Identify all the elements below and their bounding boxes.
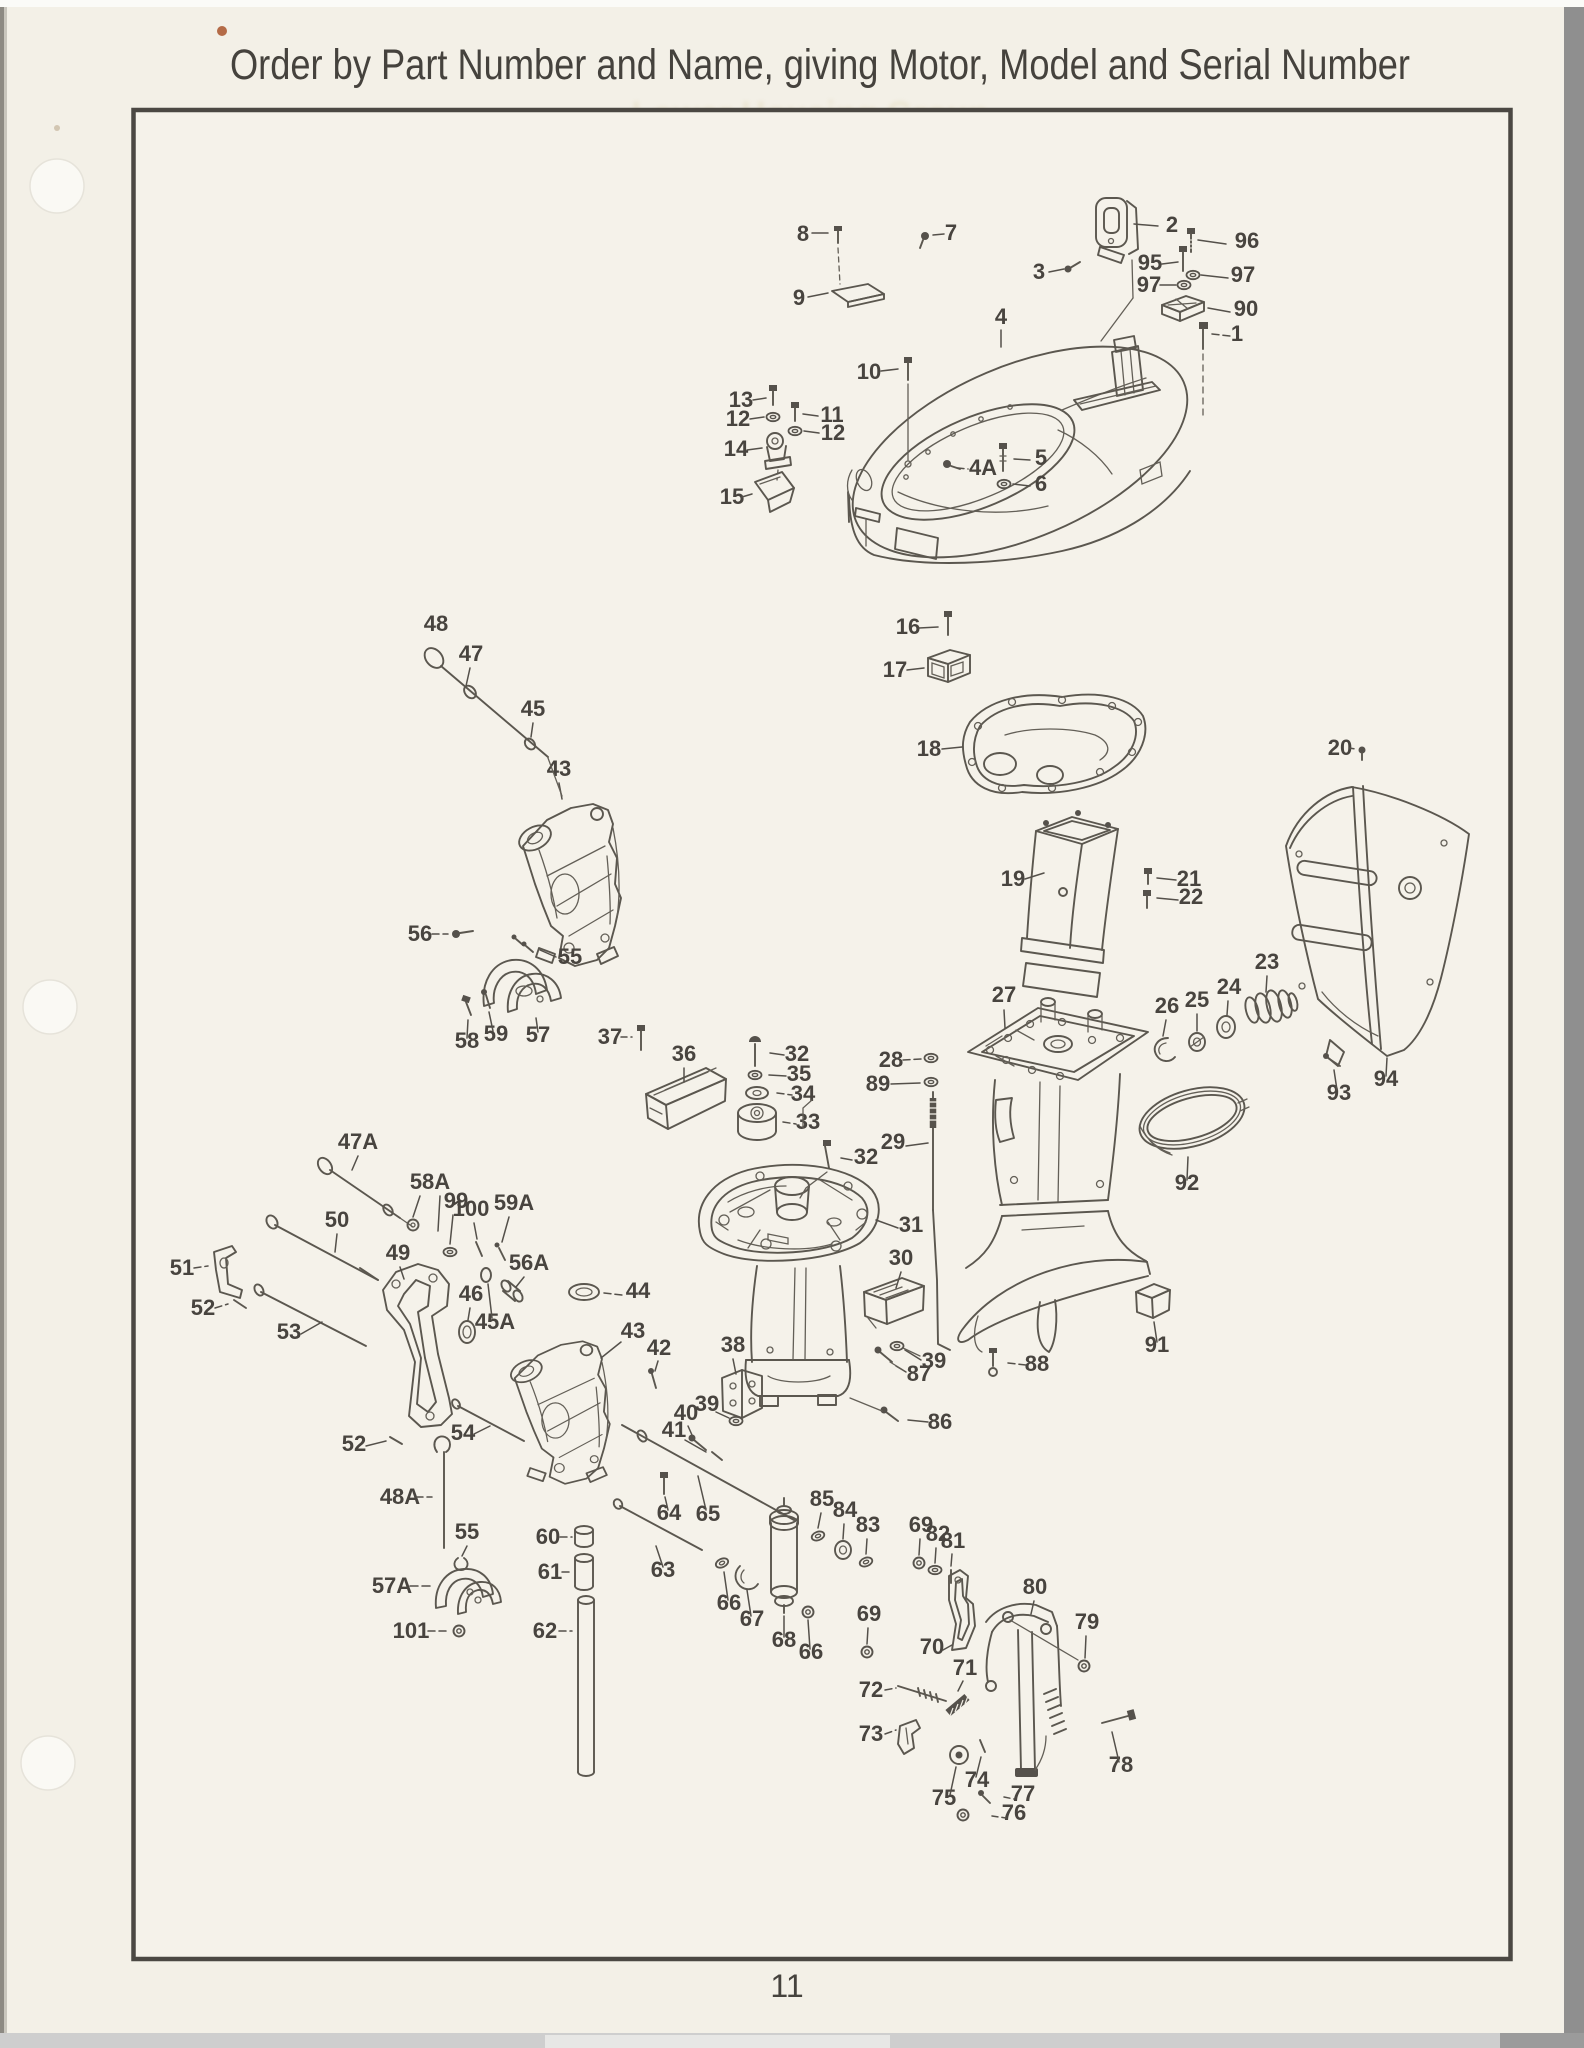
svg-text:96: 96 [1235,228,1259,253]
svg-text:45: 45 [521,696,545,721]
svg-text:6: 6 [1035,471,1047,496]
svg-text:101: 101 [393,1618,430,1643]
svg-text:38: 38 [721,1332,745,1357]
svg-text:83: 83 [856,1512,880,1537]
svg-text:43: 43 [547,756,571,781]
svg-text:67: 67 [740,1606,764,1631]
svg-text:31: 31 [899,1212,923,1237]
svg-text:11: 11 [770,1968,803,2004]
svg-text:81: 81 [941,1528,965,1553]
svg-text:17: 17 [883,657,907,682]
svg-text:89: 89 [866,1071,890,1096]
svg-text:30: 30 [889,1245,913,1270]
svg-text:4: 4 [995,304,1008,329]
svg-text:57: 57 [526,1022,550,1047]
svg-text:78: 78 [1109,1752,1133,1777]
svg-text:34: 34 [791,1081,816,1106]
svg-text:66: 66 [717,1590,741,1615]
svg-text:64: 64 [657,1500,682,1525]
svg-text:72: 72 [859,1677,883,1702]
svg-text:69: 69 [857,1601,881,1626]
svg-text:54: 54 [451,1420,476,1445]
svg-text:90: 90 [1234,296,1258,321]
svg-text:24: 24 [1217,974,1242,999]
svg-text:46: 46 [459,1281,483,1306]
svg-text:79: 79 [1075,1609,1099,1634]
svg-text:59: 59 [484,1021,508,1046]
svg-text:23: 23 [1255,949,1279,974]
svg-text:16: 16 [896,614,920,639]
svg-text:1: 1 [1231,321,1243,346]
svg-text:52: 52 [191,1295,215,1320]
svg-text:55: 55 [455,1519,479,1544]
svg-text:53: 53 [277,1319,301,1344]
svg-text:28: 28 [879,1047,903,1072]
svg-text:50: 50 [325,1207,349,1232]
svg-text:10: 10 [857,359,881,384]
svg-text:5: 5 [1035,445,1047,470]
svg-text:51: 51 [170,1255,194,1280]
svg-text:88: 88 [1025,1351,1049,1376]
svg-text:87: 87 [907,1361,931,1386]
svg-text:15: 15 [720,484,744,509]
svg-text:84: 84 [833,1497,858,1522]
svg-text:12: 12 [726,406,750,431]
svg-text:4A: 4A [969,455,997,480]
svg-text:42: 42 [647,1335,671,1360]
svg-text:100: 100 [453,1196,490,1221]
svg-text:32: 32 [854,1144,878,1169]
svg-text:65: 65 [696,1501,720,1526]
svg-text:61: 61 [538,1559,562,1584]
svg-text:43: 43 [621,1318,645,1343]
svg-text:75: 75 [932,1785,956,1810]
svg-text:12: 12 [821,420,845,445]
svg-text:47A: 47A [338,1129,378,1154]
svg-text:57A: 57A [372,1573,412,1598]
svg-text:73: 73 [859,1721,883,1746]
svg-text:93: 93 [1327,1080,1351,1105]
svg-text:44: 44 [626,1278,651,1303]
svg-text:9: 9 [793,285,805,310]
svg-text:97: 97 [1231,262,1255,287]
svg-text:49: 49 [386,1240,410,1265]
svg-text:19: 19 [1001,866,1025,891]
svg-text:52: 52 [342,1431,366,1456]
svg-text:3: 3 [1033,259,1045,284]
svg-text:63: 63 [651,1557,675,1582]
svg-text:80: 80 [1023,1574,1047,1599]
svg-text:14: 14 [724,436,749,461]
svg-text:37: 37 [598,1024,622,1049]
svg-text:59A: 59A [494,1190,534,1215]
svg-text:56: 56 [408,921,432,946]
svg-text:97: 97 [1137,272,1161,297]
svg-text:Order by Part Number and Name,: Order by Part Number and Name, giving Mo… [230,41,1410,89]
svg-text:55: 55 [558,944,582,969]
svg-text:36: 36 [672,1041,696,1066]
svg-text:91: 91 [1145,1332,1169,1357]
svg-text:66: 66 [799,1639,823,1664]
svg-text:47: 47 [459,641,483,666]
svg-text:2: 2 [1166,212,1178,237]
svg-text:33: 33 [796,1109,820,1134]
svg-text:8: 8 [797,221,809,246]
svg-text:60: 60 [536,1524,560,1549]
svg-text:25: 25 [1185,987,1209,1012]
svg-text:70: 70 [920,1634,944,1659]
svg-text:7: 7 [945,220,957,245]
svg-text:22: 22 [1179,884,1203,909]
svg-text:48A: 48A [380,1484,420,1509]
svg-text:45A: 45A [475,1309,515,1334]
svg-text:18: 18 [917,736,941,761]
svg-text:27: 27 [992,982,1016,1007]
svg-text:86: 86 [928,1409,952,1434]
svg-text:26: 26 [1155,993,1179,1018]
svg-text:56A: 56A [509,1250,549,1275]
svg-text:85: 85 [810,1486,834,1511]
svg-text:41: 41 [662,1417,686,1442]
svg-text:76: 76 [1002,1800,1026,1825]
svg-text:71: 71 [953,1655,977,1680]
svg-text:29: 29 [881,1129,905,1154]
svg-text:48: 48 [424,611,448,636]
svg-text:62: 62 [533,1618,557,1643]
